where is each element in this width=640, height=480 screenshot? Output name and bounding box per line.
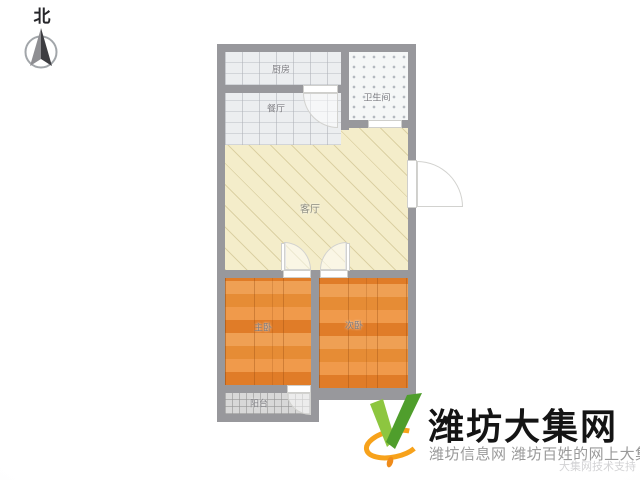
room-living <box>225 128 408 270</box>
site-watermark: 大集网技术支持 <box>559 458 636 474</box>
room-second-bedroom <box>319 278 408 388</box>
label-living: 客厅 <box>300 201 320 216</box>
label-kitchen: 厨房 <box>272 63 290 76</box>
bathroom-door-sill <box>368 120 402 128</box>
wall-top <box>217 44 416 52</box>
wall-left <box>217 44 225 422</box>
entrance-door-arc <box>417 161 463 207</box>
label-second-bedroom: 次卧 <box>345 319 363 332</box>
wall-bathroom-left <box>341 44 349 130</box>
wall-bedroom-divider <box>311 278 319 422</box>
second-door-sill <box>320 270 348 278</box>
wall-balcony-bottom <box>217 414 319 422</box>
wall-right-upper <box>408 44 416 160</box>
label-balcony: 阳台 <box>250 397 268 410</box>
master-door-sill <box>283 270 311 278</box>
balcony-door-leaf <box>287 385 311 393</box>
room-bathroom <box>349 52 408 120</box>
label-master-bedroom: 主卧 <box>254 321 272 334</box>
kitchen-door-leaf <box>303 85 338 93</box>
wall-living-bedrooms <box>225 270 408 278</box>
v-check-logo-icon <box>362 392 424 472</box>
label-bathroom: 卫生间 <box>363 91 390 104</box>
label-dining: 餐厅 <box>267 102 285 115</box>
wall-right-lower <box>408 208 416 400</box>
entrance-door-leaf <box>407 160 417 208</box>
site-logo: 潍坊大集网 潍坊信息网 潍坊百姓的网上大集 大集网技术支持 <box>362 392 638 476</box>
